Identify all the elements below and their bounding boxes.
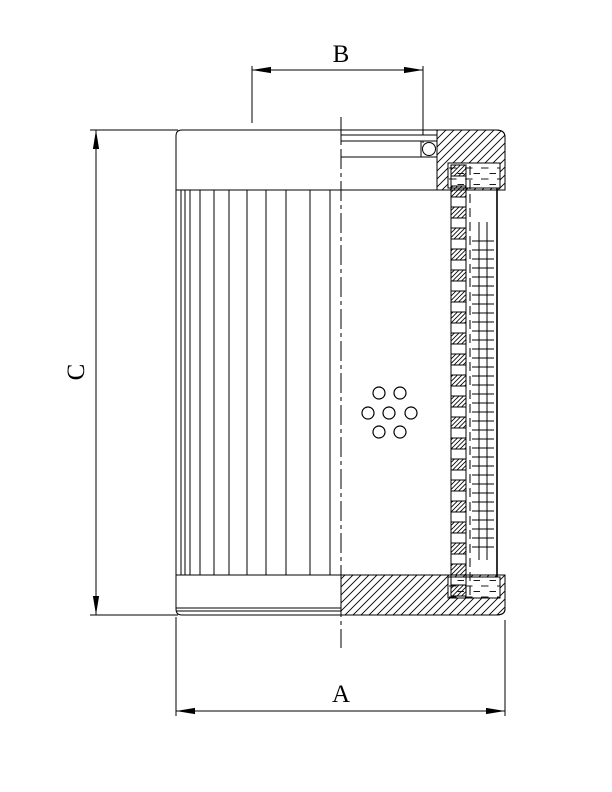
perforation-hole [373,387,385,399]
tube-hatch-square [451,312,466,323]
dim-a-arrow-left-icon [176,708,195,714]
tube-hatch-square [451,564,466,575]
tube-hatch-square [451,522,466,533]
dimension-c: C [63,130,178,615]
tube-hatch-square [451,228,466,239]
tube-hatch-square [451,543,466,554]
perforation-hole [383,407,395,419]
dim-b-label: B [333,41,350,68]
perforation-hole [394,426,406,438]
tube-hatch-square [451,480,466,491]
drawing-page: C B A [0,0,612,792]
tube-hatch-square [451,438,466,449]
dim-b-arrow-right-icon [404,67,423,73]
tube-hatch-squares [451,165,466,596]
dimension-b: B [252,41,423,143]
top-cap-slot [341,135,437,141]
tube-hatch-square [451,270,466,281]
mesh-rungs [472,241,494,547]
perforation-hole [373,426,385,438]
tube-hatch-square [451,375,466,386]
perforated-support-tube [451,165,466,598]
dim-a-arrow-right-icon [486,708,505,714]
filter-element-cross-section-drawing: C B A [0,0,612,792]
tube-hatch-square [451,291,466,302]
tube-hatch-square [451,459,466,470]
wire-mesh [470,166,497,596]
o-ring [423,143,436,156]
tube-hatch-square [451,207,466,218]
dim-b-arrow-left-icon [252,67,271,73]
perforation-hole [394,387,406,399]
tube-hatch-square [451,417,466,428]
tube-hatch-square [451,249,466,260]
dim-c-arrow-up-icon [93,130,99,149]
tube-hatch-square [451,396,466,407]
perforation-hole [405,407,417,419]
dim-a-label: A [332,681,350,708]
perforation-hole [362,407,374,419]
dim-c-arrow-down-icon [93,596,99,615]
tube-hatch-square [451,186,466,197]
pleat-lines [181,190,330,575]
perforation-holes [362,387,417,438]
tube-hatch-square [451,501,466,512]
tube-hatch-square [451,585,466,596]
tube-hatch-square [451,333,466,344]
dim-c-label: C [63,364,90,381]
tube-hatch-square [451,354,466,365]
pleated-filter-media [176,190,330,575]
tube-hatch-square [451,165,466,176]
